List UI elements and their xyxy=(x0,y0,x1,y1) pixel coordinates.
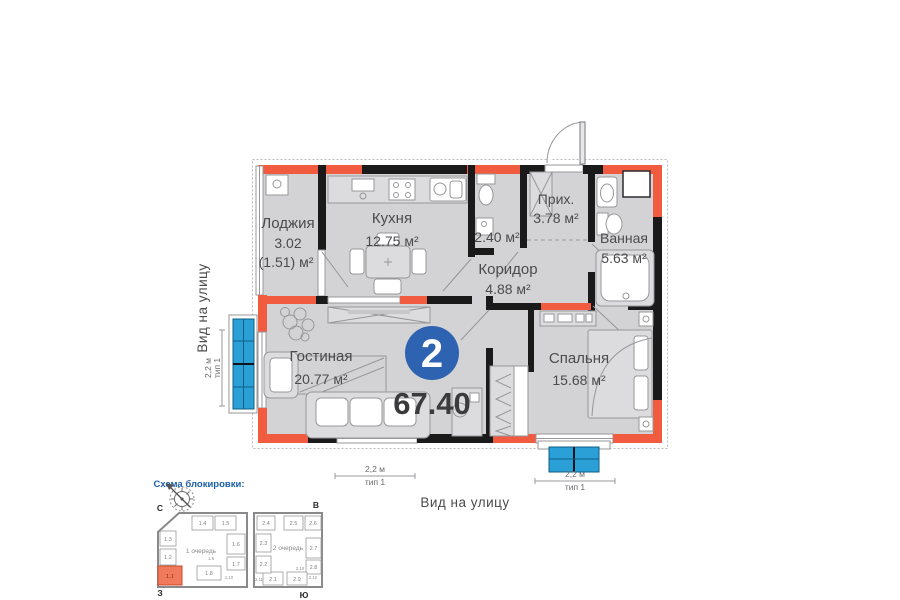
corridor-area: 4.88 м² xyxy=(485,281,531,297)
bathroom-label: Ванная xyxy=(600,230,648,246)
scheme-unit-small[interactable]: 2.11 xyxy=(255,577,264,582)
scheme-unit[interactable]: 1.5 xyxy=(215,516,236,530)
scheme-unit-small[interactable]: 2.10 xyxy=(296,566,305,571)
svg-text:2.4: 2.4 xyxy=(262,521,270,527)
scheme-unit[interactable]: 1.3 xyxy=(160,531,176,546)
svg-text:2.8: 2.8 xyxy=(310,565,318,571)
hall-label: Прих. xyxy=(538,191,575,207)
svg-text:2.6: 2.6 xyxy=(309,521,317,527)
scheme-unit[interactable]: 2.8 xyxy=(306,560,321,574)
loggia-cabinet-symbol xyxy=(266,175,288,195)
scheme-unit-small[interactable]: 1.10 xyxy=(225,575,234,580)
badge-number: 2 xyxy=(421,332,443,376)
entrance-door-symbol xyxy=(547,122,585,164)
bottom-left-dim-size: 2,2 м xyxy=(365,464,385,474)
svg-text:2.3: 2.3 xyxy=(260,541,268,547)
bottom-balcony-symbol xyxy=(538,441,610,472)
street-view-left-label: Вид на улицу xyxy=(195,263,210,352)
scheme-unit[interactable]: 1.4 xyxy=(192,516,213,530)
living-room-label: Гостиная xyxy=(290,348,353,365)
phase2-label: 2 очередь xyxy=(273,545,304,552)
loggia-area-reduced: (1.51) м² xyxy=(259,254,314,270)
cardinal-south: Ю xyxy=(300,590,309,600)
street-view-bottom-label: Вид на улицу xyxy=(420,495,509,510)
scheme-unit[interactable]: 2.5 xyxy=(284,516,303,530)
scheme-block-phase1: 1 очередь 1.1 1.2 1.3 1.4 1.5 xyxy=(158,513,247,587)
phase1-label: 1 очередь xyxy=(186,548,217,555)
svg-text:1.2: 1.2 xyxy=(164,555,172,561)
scheme-unit[interactable]: 2.1 xyxy=(263,572,283,585)
svg-text:1.7: 1.7 xyxy=(232,562,240,568)
left-balcony-symbol xyxy=(229,315,257,413)
bottom-right-dim-size: 2,2 м xyxy=(565,469,585,479)
kitchen-label: Кухня xyxy=(372,210,412,227)
scheme-unit[interactable]: 1.7 xyxy=(227,557,245,570)
scheme-unit[interactable]: 1.8 xyxy=(197,566,221,580)
wc-area: 2.40 м² xyxy=(474,229,520,245)
svg-text:1.6: 1.6 xyxy=(232,542,240,548)
bottom-left-dimension: 2,2 м тип 1 xyxy=(335,464,415,487)
bathroom-area: 5.63 м² xyxy=(601,250,647,266)
hall-area: 3.78 м² xyxy=(533,210,579,226)
scheme-unit[interactable]: 1.2 xyxy=(160,549,176,565)
svg-text:2.2: 2.2 xyxy=(260,562,268,568)
scheme-unit[interactable]: 2.4 xyxy=(257,516,275,530)
svg-text:1.1: 1.1 xyxy=(166,574,174,580)
cardinal-north: С xyxy=(157,503,163,513)
cardinal-west: З xyxy=(157,588,162,598)
scheme-unit[interactable]: 2.9 xyxy=(287,572,307,585)
living-room-area: 20.77 м² xyxy=(294,371,348,387)
floor-plan-svg: Лоджия 3.02 (1.51) м² Кухня 12.75 м² 2.4… xyxy=(0,0,900,600)
bedroom-label: Спальня xyxy=(549,350,609,367)
scheme-unit-small[interactable]: 2.12 xyxy=(309,575,318,580)
scheme-unit[interactable]: 2.2 xyxy=(256,556,271,573)
left-dim-type: тип 1 xyxy=(212,358,222,379)
scheme-unit[interactable]: 1.6 xyxy=(227,534,245,554)
svg-text:1.8: 1.8 xyxy=(205,571,213,577)
scheme-unit[interactable]: 2.3 xyxy=(256,534,271,552)
scheme-unit[interactable]: 2.7 xyxy=(306,538,321,558)
total-area: 67.40 xyxy=(393,386,471,421)
bottom-right-dimension: 2,2 м тип 1 xyxy=(535,469,615,492)
svg-text:2.5: 2.5 xyxy=(290,521,298,527)
svg-text:1.4: 1.4 xyxy=(199,521,207,527)
scheme-unit[interactable]: 1.1 xyxy=(158,566,182,585)
floorplan-page: Лоджия 3.02 (1.51) м² Кухня 12.75 м² 2.4… xyxy=(0,0,900,600)
svg-text:2.7: 2.7 xyxy=(310,546,318,552)
corridor-wardrobe-symbol xyxy=(490,366,528,436)
bottom-left-dim-type: тип 1 xyxy=(365,477,386,487)
loggia-area: 3.02 xyxy=(274,235,301,251)
svg-text:2.1: 2.1 xyxy=(269,577,277,583)
svg-text:1.3: 1.3 xyxy=(164,537,172,543)
loggia-label: Лоджия xyxy=(261,215,314,232)
scheme-unit[interactable]: 2.6 xyxy=(305,516,321,530)
kitchen-area: 12.75 м² xyxy=(365,233,419,249)
cardinal-east: В xyxy=(313,500,319,510)
bedroom-area: 15.68 м² xyxy=(552,372,606,388)
svg-text:1.5: 1.5 xyxy=(222,521,230,527)
svg-text:2.9: 2.9 xyxy=(293,577,301,583)
kitchen-furniture-symbol xyxy=(328,176,467,203)
scheme-unit-small[interactable]: 1.9 xyxy=(208,556,214,561)
corridor-label: Коридор xyxy=(478,261,537,278)
blocking-scheme: Схема блокировки: С В З Ю 1 очередь xyxy=(153,479,322,600)
scheme-block-phase2: 2 очередь 2.1 2.2 2.3 2.4 2.5 xyxy=(254,513,322,587)
bottom-right-dim-type: тип 1 xyxy=(565,482,586,492)
room-count-badge: 2 xyxy=(405,326,459,380)
